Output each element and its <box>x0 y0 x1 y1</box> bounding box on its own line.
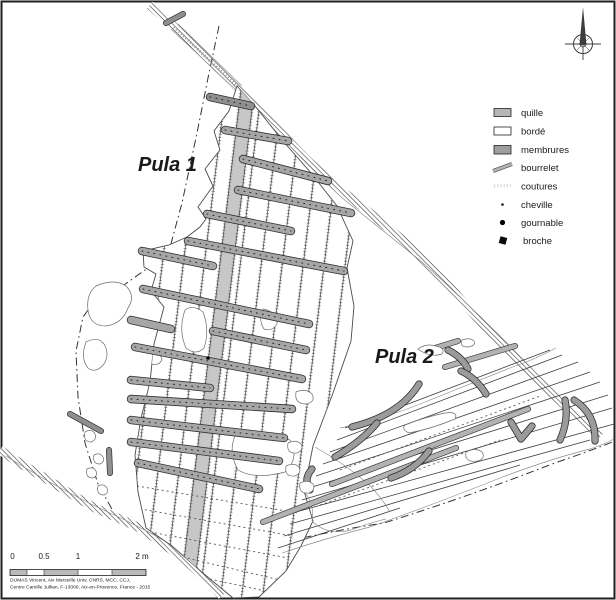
scale-tick-2m: 2 m <box>135 552 149 561</box>
pula2-label: Pula 2 <box>375 346 434 368</box>
legend-label-membrures: membrures <box>521 145 569 156</box>
legend-label-quille: quille <box>521 108 543 119</box>
archaeological-site-plan: Pula 1 Pula 2 quille bordé membrures bou… <box>0 0 616 600</box>
credit-line-1: DUMAS Vincent, Aix Marseille Univ, CNRS,… <box>10 578 130 584</box>
credit-line-2: Centre Camille Jullian, F-13000, Aix-en-… <box>10 585 151 591</box>
gournable-dot <box>206 356 210 360</box>
legend-label-broche: broche <box>523 236 552 247</box>
legend-swatch-gournable <box>500 220 505 225</box>
legend-swatch-membrures <box>494 146 511 155</box>
site-plan-drawing: Pula 1 Pula 2 quille bordé membrures bou… <box>0 0 616 600</box>
legend-label-borde: bordé <box>521 127 545 138</box>
legend-swatch-quille <box>494 109 511 117</box>
legend-label-coutures: coutures <box>521 182 558 193</box>
legend-swatch-borde <box>494 127 511 135</box>
legend-label-cheville: cheville <box>521 200 553 211</box>
legend-label-bourrelet: bourrelet <box>521 163 559 174</box>
scale-tick-0: 0 <box>10 552 15 561</box>
scale-tick-1: 1 <box>76 552 81 561</box>
scale-tick-05: 0.5 <box>38 552 50 561</box>
legend-label-gournable: gournable <box>521 218 563 229</box>
legend-swatch-cheville <box>501 203 504 206</box>
pula1-label: Pula 1 <box>138 154 197 176</box>
